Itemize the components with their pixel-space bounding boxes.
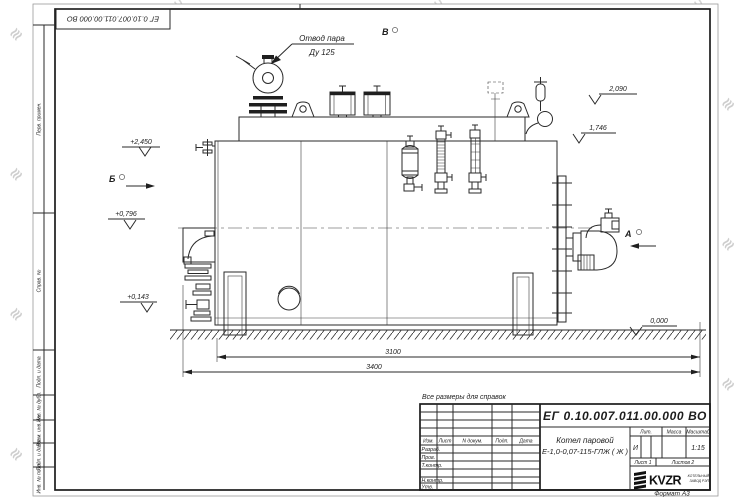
scale-value: 1:15 xyxy=(691,445,705,452)
dim-overall-length: 3400 xyxy=(366,364,382,371)
col-izm: Изм. xyxy=(423,439,434,445)
callout-line2: Ду 125 xyxy=(308,48,335,57)
mass-label: Масса xyxy=(667,430,682,436)
sheet-number: Лист 1 xyxy=(633,460,651,466)
margin-label: Справ. № xyxy=(37,269,43,292)
elevation-label: +0,143 xyxy=(127,294,149,301)
doc-number: ЕГ 0.10.007.011.00.000 ВО xyxy=(543,409,707,423)
row-nkontr: Н.контр. xyxy=(422,478,444,484)
lit-label: Лит. xyxy=(639,430,652,436)
elevation-label: +2,450 xyxy=(130,139,152,146)
elevation-label: 2,090 xyxy=(608,86,627,93)
margin-label: Инв. № подл. xyxy=(37,462,43,493)
scale-label: Масштаб xyxy=(686,430,710,436)
stamp-doc-number: ЕГ 0.10.007.011.00.000 ВО xyxy=(67,15,159,24)
row-tkontr: Т.контр. xyxy=(422,463,443,469)
ground-hatch xyxy=(170,331,706,340)
col-ndoc: N докум. xyxy=(462,439,482,445)
view-v-label: В xyxy=(382,27,389,37)
format-label: Формат А3 xyxy=(654,491,690,498)
kvzr-coil-watermark-icon: ≋ xyxy=(5,443,27,465)
kvzr-coil-watermark-icon: ≋ xyxy=(717,93,739,115)
col-list: Лист xyxy=(438,439,452,445)
reference-note: Все размеры для справок xyxy=(422,393,507,401)
row-prov: Пров. xyxy=(422,455,436,461)
product-name-line2: Е-1,0-0,07-115-ГЛЖ ( Ж ) xyxy=(542,447,628,456)
kvzr-coil-watermark-icon: ≋ xyxy=(5,23,27,45)
dim-body-length: 3100 xyxy=(385,349,401,356)
logo-subtext-2: ЗАВОД РЭП xyxy=(690,479,710,483)
elevation-label: 1,746 xyxy=(589,125,607,132)
col-data: Дата xyxy=(518,439,532,445)
elevation-label: 0,000 xyxy=(650,318,668,325)
sheet-total: Листов 2 xyxy=(671,460,695,466)
elevation-label: +0,796 xyxy=(115,211,137,218)
row-razrab: Разраб. xyxy=(422,447,441,453)
view-b-label: Б xyxy=(109,174,116,184)
engineering-drawing-sheet: ≋KVZR.RU≋KVZR.RU≋KVZR.RUKVZR.RU≋KVZR.RU≋… xyxy=(0,0,750,500)
kvzr-coil-watermark-icon: ≋ xyxy=(717,233,739,255)
kvzr-coil-watermark-icon: ≋ xyxy=(5,303,27,325)
kvzr-coil-watermark-icon: ≋ xyxy=(5,163,27,185)
callout-line1: Отвод пара xyxy=(299,34,345,43)
logo-text: KVZR xyxy=(649,474,682,488)
margin-label: Перв. примен. xyxy=(37,102,43,135)
kvzr-coil-watermark-icon: ≋ xyxy=(717,373,739,395)
col-podp: Подп. xyxy=(495,439,508,445)
view-a-label: А xyxy=(624,229,632,239)
margin-label: Подп. и дата xyxy=(37,356,43,388)
product-name-line1: Котел паровой xyxy=(556,436,614,445)
row-utv: Утв. xyxy=(422,485,434,491)
logo-subtext-1: КОТЕЛЬНЫЙ xyxy=(688,474,710,478)
